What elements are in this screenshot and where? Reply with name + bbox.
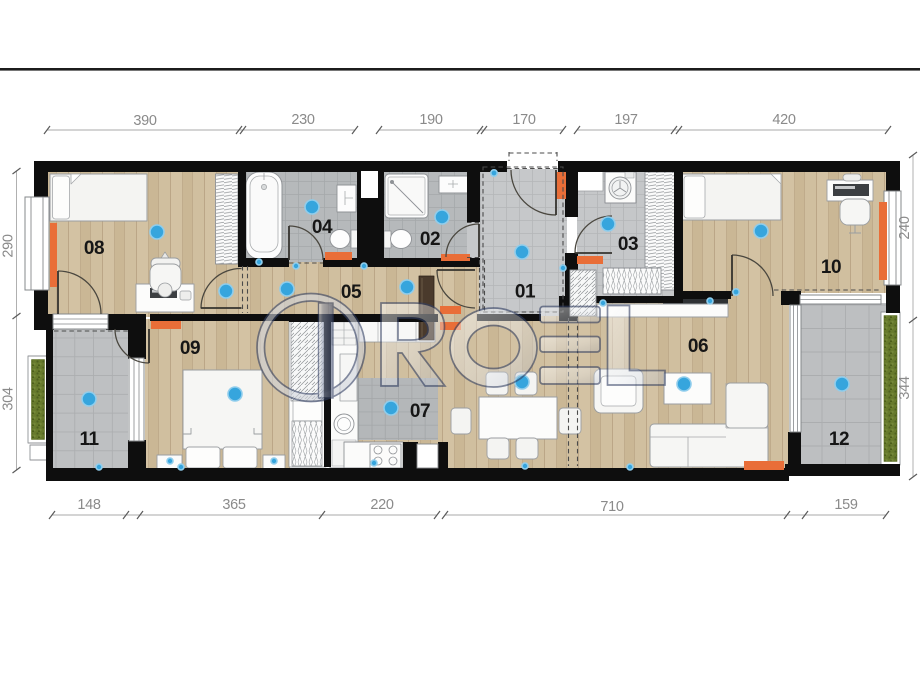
- svg-text:240: 240: [897, 216, 913, 240]
- svg-text:02: 02: [420, 229, 440, 250]
- svg-text:170: 170: [512, 112, 536, 128]
- svg-text:197: 197: [614, 112, 638, 128]
- svg-text:344: 344: [897, 376, 913, 400]
- svg-text:05: 05: [341, 282, 362, 303]
- svg-text:159: 159: [834, 497, 858, 513]
- svg-text:10: 10: [821, 257, 841, 278]
- svg-text:190: 190: [419, 112, 443, 128]
- svg-text:148: 148: [77, 497, 101, 513]
- svg-text:304: 304: [1, 387, 17, 411]
- svg-text:04: 04: [312, 217, 333, 238]
- svg-text:06: 06: [688, 336, 708, 357]
- svg-text:365: 365: [222, 497, 246, 513]
- svg-text:12: 12: [829, 429, 849, 450]
- svg-text:420: 420: [772, 112, 796, 128]
- svg-text:03: 03: [618, 234, 638, 255]
- svg-text:220: 220: [370, 497, 394, 513]
- svg-text:230: 230: [291, 112, 315, 128]
- svg-text:11: 11: [79, 429, 99, 450]
- svg-text:01: 01: [515, 281, 536, 302]
- svg-text:710: 710: [600, 499, 624, 515]
- svg-text:290: 290: [1, 234, 17, 258]
- svg-text:390: 390: [133, 113, 157, 129]
- svg-text:09: 09: [180, 338, 200, 359]
- svg-text:07: 07: [410, 401, 430, 422]
- svg-text:08: 08: [84, 238, 104, 259]
